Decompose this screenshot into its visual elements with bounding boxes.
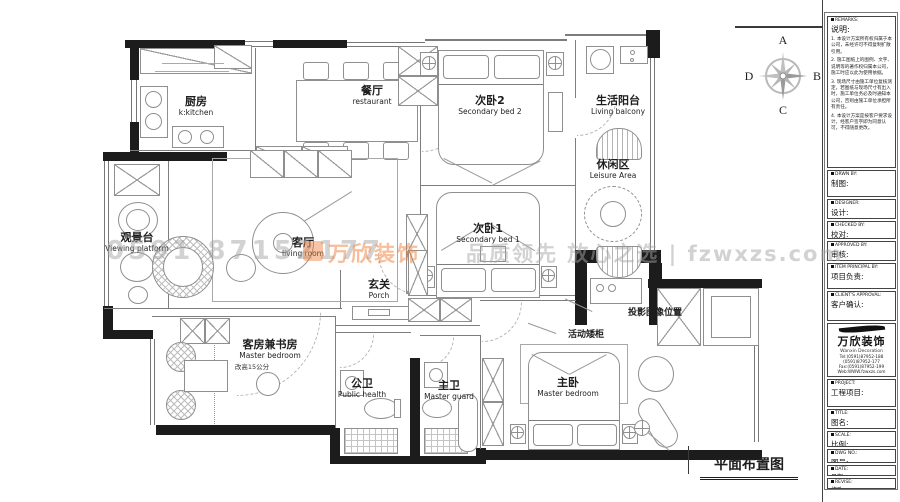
ceiling-lamp-icon [548, 56, 562, 70]
partition [575, 138, 576, 250]
room-label-bed2: 次卧2 Secondary bed 2 [458, 94, 521, 116]
field-label-zh: 设计: [831, 207, 892, 218]
wall-segment [425, 39, 567, 41]
room-label-bed1-en: Secondary bed 1 [456, 235, 519, 244]
field-label-zh: 修改: [831, 485, 892, 489]
compass-letter-right: B [813, 69, 821, 83]
pillow [491, 268, 536, 292]
pillow [443, 55, 489, 79]
field-label-zh: 图名: [831, 417, 892, 428]
guest-closet [180, 318, 205, 344]
master-wardrobe [482, 358, 504, 402]
compass: A B C D [742, 32, 824, 120]
room-label-guest: 客房兼书房 Master bedroom [239, 338, 301, 360]
platform-cabinet [114, 164, 160, 196]
room-label-viewing: 观景台 Viewing platform [105, 231, 169, 253]
field-label-zh: 比例: [831, 439, 892, 447]
room-label-master-bed: 主卧 Master bedroom [537, 376, 599, 398]
toilet-tank [394, 399, 401, 418]
wall-segment [646, 30, 660, 58]
remarks-note: 3. 现场尺寸由施工单位复核测定，若图纸与现场尺寸有出入时，施工单位务必及时通知… [831, 80, 892, 112]
room-label-viewing-zh: 观景台 [105, 231, 169, 244]
floor-cushion [166, 390, 196, 420]
room-label-porch-en: Porch [368, 291, 390, 300]
window [131, 80, 137, 122]
bed-bench [548, 92, 563, 132]
titleblock-dwg-no: DWG NO.: 图号: [827, 449, 896, 463]
room-label-bed1: 次卧1 Secondary bed 1 [456, 222, 519, 244]
burner [178, 130, 192, 144]
partition [130, 150, 256, 151]
sink-bowl [145, 113, 162, 130]
titleblock-client-approval: CLIENT'S APPROVAL: 客户确认: [827, 291, 896, 321]
room-label-bed1-zh: 次卧1 [456, 222, 519, 235]
field-label-en: CLIENT'S APPROVAL: [831, 293, 892, 298]
duct-dot [608, 284, 616, 292]
note-line [155, 71, 229, 72]
field-label-zh: 日期: [831, 472, 892, 476]
room-label-master-bath: 主卫 Master guard [424, 379, 474, 401]
titleblock-item-principal: ITEM PRINCIPAL BY: 项目负责: [827, 263, 896, 289]
room-label-master-bed-zh: 主卧 [537, 376, 599, 389]
window [150, 339, 155, 425]
wall-segment [575, 263, 587, 325]
field-label-zh: 项目负责: [831, 271, 892, 282]
remarks-note: 2. 施工图纸上的图例、文字、说明等的著作权归属本公司，施工时应以此为使用依据。 [831, 58, 892, 77]
pillow [577, 424, 617, 446]
window [650, 58, 655, 258]
remarks-label-zh: 说明: [831, 24, 892, 35]
company-logo-zh: 万欣装饰 [831, 333, 892, 349]
partition [480, 335, 481, 449]
compass-letter-left: D [745, 69, 754, 83]
field-label-en: SCALE: [831, 433, 892, 438]
room-label-kitchen: 厨房 k:kitchen [179, 95, 213, 117]
pillow [494, 55, 540, 79]
room-label-balcony-zh: 生活阳台 [591, 94, 645, 107]
field-label-zh: 审核: [831, 249, 892, 260]
room-label-master-bed-en: Master bedroom [537, 389, 599, 398]
partition [480, 300, 576, 301]
partition [335, 332, 411, 333]
bed1-wardrobe [406, 214, 428, 254]
bedroom-chair [638, 356, 674, 392]
room-label-leisure: 休闲区 Leisure Area [590, 158, 637, 180]
sofa-seat [250, 150, 284, 178]
field-label-en: DESIGNER: [831, 201, 892, 206]
dining-chair [343, 62, 369, 80]
field-label-en: PROJECT: [831, 381, 892, 386]
room-label-leisure-en: Leisure Area [590, 171, 637, 180]
tea-table [184, 360, 228, 392]
room-label-kitchen-zh: 厨房 [179, 95, 213, 108]
room-label-public-bath-zh: 公卫 [338, 377, 386, 390]
leader-line [528, 323, 557, 334]
duct-dot [596, 284, 604, 292]
room-label-master-bath-en: Master guard [424, 392, 474, 401]
titleblock-approved-by: APPROVED BY: 审核: [827, 241, 896, 261]
field-label-zh: 图号: [831, 457, 892, 463]
wall-segment [103, 152, 227, 161]
sofa-seat [284, 150, 318, 178]
field-label-en: ITEM PRINCIPAL BY: [831, 265, 892, 270]
floor-plan-sheet: 厨房 k:kitchen 餐厅 restaurant 次卧2 Secondary… [0, 0, 900, 502]
titleblock-designer: DESIGNER: 设计: [827, 199, 896, 219]
partition [420, 185, 575, 186]
field-label-en: DWG NO.: [831, 451, 892, 456]
field-label-en: TITLE: [831, 411, 892, 416]
kitchen-flue [214, 45, 252, 69]
titleblock-project: PROJECT: 工程项目: [827, 379, 896, 407]
bed-line [437, 264, 539, 265]
room-label-public-bath: 公卫 Public health [338, 377, 386, 399]
wall-segment [273, 40, 347, 48]
titleblock-scale: SCALE: 比例: [827, 431, 896, 447]
field-label-zh: 制图: [831, 178, 892, 189]
stair-shaft-inner [711, 296, 751, 338]
room-label-master-bath-zh: 主卫 [424, 379, 474, 392]
wall-segment [130, 48, 139, 80]
balcony-chair [596, 128, 642, 160]
wall-segment [103, 330, 153, 339]
partition [104, 308, 342, 309]
remarks-note: 4. 本设计方案是按客户要求设计，经客户签字即为同意认可，不得随意更改。 [831, 114, 892, 133]
bathtub [458, 394, 478, 452]
room-label-bed2-en: Secondary bed 2 [458, 107, 521, 116]
room-label-balcony-en: Living balcony [591, 107, 645, 116]
pouf [128, 286, 148, 304]
compass-letter-top: A [779, 33, 788, 47]
titleblock-remarks: REMARKS: 说明: 1. 本设计方案所有权归属于本公司，未经许可不得复制扩… [827, 16, 896, 168]
corridor-cabinet [408, 298, 440, 322]
room-label-bed2-zh: 次卧2 [458, 94, 521, 107]
guest-note: 改高15公分 [235, 364, 269, 372]
corridor-cabinet [440, 298, 472, 322]
titleblock-revise: REVISE: 修改: [827, 478, 896, 489]
corridor-cabinet [408, 250, 428, 296]
company-contact-line: Web:WWW.fzwxzs.com [831, 369, 892, 374]
guest-closet [205, 318, 230, 344]
leisure-table-top [600, 201, 626, 227]
door-arc [482, 302, 522, 342]
room-label-porch-zh: 玄关 [368, 278, 390, 291]
compass-rose: A B C D [742, 32, 824, 116]
round-stool [256, 372, 280, 396]
sheet-line [735, 26, 822, 28]
stool [480, 246, 506, 262]
wall-segment [410, 358, 420, 458]
bed-line [439, 84, 543, 85]
partition [575, 40, 576, 98]
room-label-dining-zh: 餐厅 [352, 84, 391, 97]
shoe-cabinet-handle [368, 309, 390, 316]
watermark-logo-icon [303, 241, 323, 261]
wall-segment [565, 34, 655, 36]
hall-wardrobe [398, 76, 438, 106]
ceiling-lamp-icon [511, 426, 524, 439]
titleblock-checked-by: CHECKED BY: 校对: [827, 221, 896, 239]
titleblock-date: DATE: 日期: [827, 465, 896, 476]
remarks-label-en: REMARKS: [831, 18, 892, 23]
bed-line [529, 420, 619, 421]
room-label-public-bath-en: Public health [338, 390, 386, 399]
field-label-zh: 工程项目: [831, 387, 892, 398]
room-label-kitchen-en: k:kitchen [179, 108, 213, 117]
wicker-chair-seat [163, 247, 203, 287]
compass-letter-bottom: C [779, 103, 787, 116]
titleblock-drawn-by: DRWN BY: 制图: [827, 170, 896, 197]
wall-segment [156, 425, 336, 435]
ceiling-lamp-icon [542, 269, 555, 282]
side-table [226, 254, 256, 282]
remarks-note: 1. 本设计方案所有权归属于本公司，未经许可不得复制扩散引用。 [831, 37, 892, 56]
shower-floor [344, 428, 398, 454]
ceiling-lamp-icon [422, 56, 436, 70]
room-label-guest-en: Master bedroom [239, 351, 301, 360]
field-label-en: DRWN BY: [831, 172, 892, 177]
field-label-en: APPROVED BY: [831, 243, 892, 248]
field-label-en: CHECKED BY: [831, 223, 892, 228]
titleblock-title: TITLE: 图名: [827, 409, 896, 429]
wall-segment [648, 279, 762, 288]
field-label-zh: 客户确认: [831, 299, 892, 310]
door-arc [340, 334, 374, 368]
annotation-projection: 投影图像位置 [628, 308, 682, 319]
balcony-chair [596, 246, 642, 278]
remarks-notes: 1. 本设计方案所有权归属于本公司，未经许可不得复制扩散引用。 2. 施工图纸上… [831, 37, 892, 133]
drawing-title: 平面布置图 [700, 454, 798, 480]
pillow [441, 268, 486, 292]
faucet-dot [630, 58, 634, 62]
partition [420, 335, 480, 336]
toilet [364, 398, 398, 419]
sink-bowl [145, 91, 162, 108]
room-label-porch: 玄关 Porch [368, 278, 390, 300]
field-label-zh: 校对: [831, 229, 892, 239]
room-label-balcony: 生活阳台 Living balcony [591, 94, 645, 116]
sofa-seat [318, 150, 352, 178]
room-label-leisure-zh: 休闲区 [590, 158, 637, 171]
master-wardrobe [482, 402, 504, 446]
sheet-line [688, 446, 689, 474]
partition [420, 106, 421, 186]
titleblock-company: 万欣装饰 Wanxin Decoration Tel:(0591)87952-1… [827, 323, 896, 377]
pouf [120, 252, 154, 282]
burner [200, 130, 214, 144]
room-label-dining: 餐厅 restaurant [352, 84, 391, 106]
balcony-sink [620, 46, 648, 64]
faucet-dot [630, 50, 635, 55]
room-label-dining-en: restaurant [352, 97, 391, 106]
dining-chair [303, 62, 329, 80]
plant-inner [126, 209, 150, 231]
pillow [533, 424, 573, 446]
annotation-cabinet: 活动矮柜 [568, 330, 604, 341]
room-label-guest-zh: 客房兼书房 [239, 338, 301, 351]
partition [335, 325, 480, 326]
washer-drum [590, 49, 611, 70]
note-line [162, 63, 224, 64]
partition [255, 48, 256, 150]
room-label-viewing-en: Viewing platform [105, 244, 169, 253]
